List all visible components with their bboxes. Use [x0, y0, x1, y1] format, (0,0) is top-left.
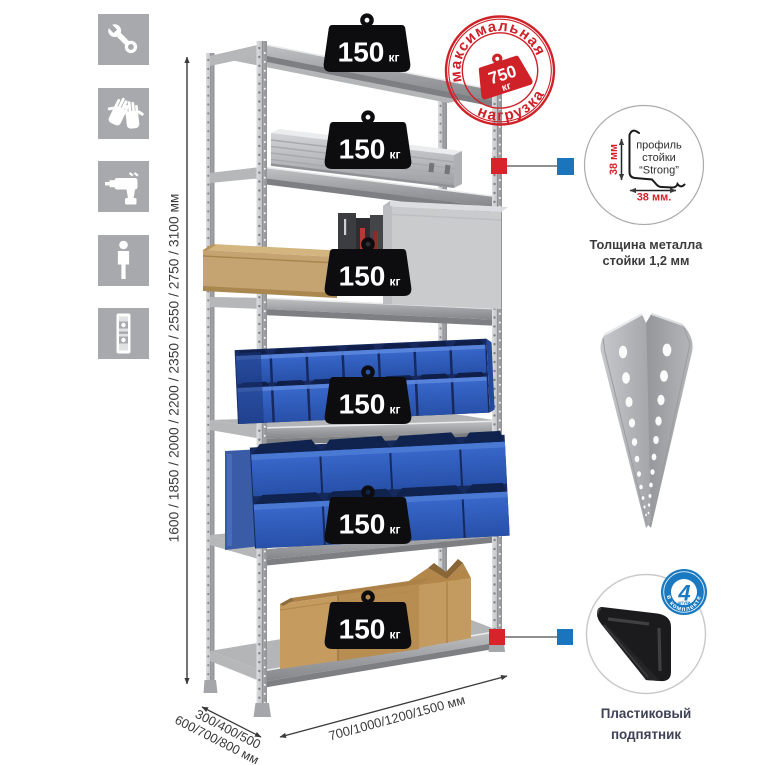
svg-text:38 мм.: 38 мм.	[637, 192, 672, 204]
svg-text:“Strong”: “Strong”	[639, 165, 679, 177]
svg-text:стойки 1,2 мм: стойки 1,2 мм	[602, 253, 689, 268]
svg-text:профиль: профиль	[636, 140, 682, 152]
svg-text:Пластиковый: Пластиковый	[601, 706, 691, 721]
svg-text:подпятник: подпятник	[611, 727, 681, 742]
svg-text:1600 / 1850 / 2000 / 2200 / 23: 1600 / 1850 / 2000 / 2200 / 2350 / 2550 …	[167, 194, 182, 543]
svg-text:Толщина металла: Толщина металла	[590, 237, 704, 252]
svg-text:38 мм: 38 мм	[608, 144, 620, 175]
svg-text:штуки: штуки	[678, 600, 691, 605]
svg-text:стойки: стойки	[642, 152, 676, 164]
